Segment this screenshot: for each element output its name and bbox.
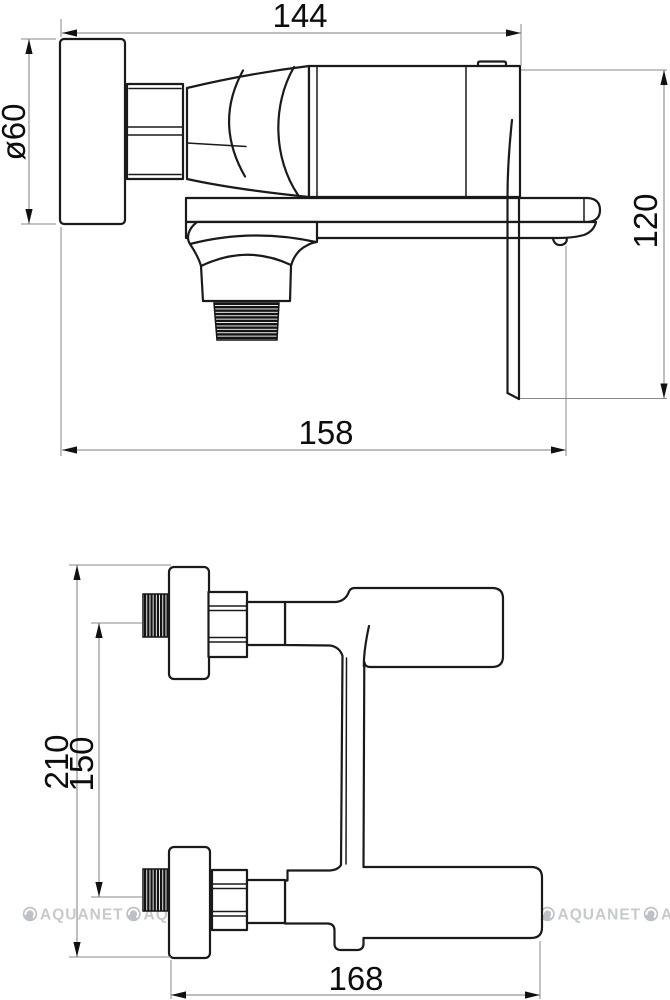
lower-inlet-thread (143, 869, 169, 911)
dimension-150: 150 (63, 623, 142, 897)
dim-label-front-width: 168 (328, 960, 383, 997)
watermark-item: AQUANET (23, 907, 124, 924)
front-body-outline (285, 588, 542, 950)
dimension-144: 144 (61, 0, 521, 66)
side-view: 144 ø60 120 158 (0, 0, 667, 456)
watermark-item: AQUANET (540, 907, 641, 924)
technical-drawing-canvas: AQUANET AQUANET AQUANET AQUANET AQUANET … (0, 0, 670, 1000)
lower-wall-connection (143, 847, 285, 958)
shower-hose-thread (214, 303, 279, 340)
body-neck-side (187, 66, 309, 197)
under-spout-body (188, 222, 317, 301)
dimension-diameter-60: ø60 (0, 39, 56, 224)
dim-label-port-spacing: 150 (63, 736, 100, 791)
column-inner-edge (346, 658, 347, 864)
watermark-item: AQUANET (644, 907, 670, 924)
upper-inlet-thread (143, 594, 169, 637)
front-view: 210 150 168 (38, 565, 542, 999)
upper-connector-pipe (247, 602, 285, 645)
lower-mounting-nut (212, 870, 247, 930)
watermark-label: AQUANET (661, 907, 670, 924)
dim-label-depth: 158 (298, 414, 353, 451)
dim-label-diameter: ø60 (0, 104, 32, 161)
dimension-158: 158 (61, 227, 566, 456)
watermark-label: AQUANET (558, 907, 642, 924)
lower-escutcheon (169, 847, 210, 958)
upper-mounting-nut (209, 592, 248, 657)
wall-escutcheon-side (60, 39, 125, 224)
upper-escutcheon (169, 567, 209, 679)
dim-label-width: 144 (272, 0, 327, 34)
watermark-label: AQUANET (40, 907, 124, 924)
faucet-dimension-drawing: AQUANET AQUANET AQUANET AQUANET AQUANET … (0, 0, 670, 1000)
mounting-nut-side (127, 84, 183, 179)
dim-label-height: 120 (627, 193, 664, 248)
cartridge-body-side (309, 62, 520, 198)
upper-wall-connection (143, 567, 285, 679)
lower-connector-pipe (247, 880, 285, 923)
